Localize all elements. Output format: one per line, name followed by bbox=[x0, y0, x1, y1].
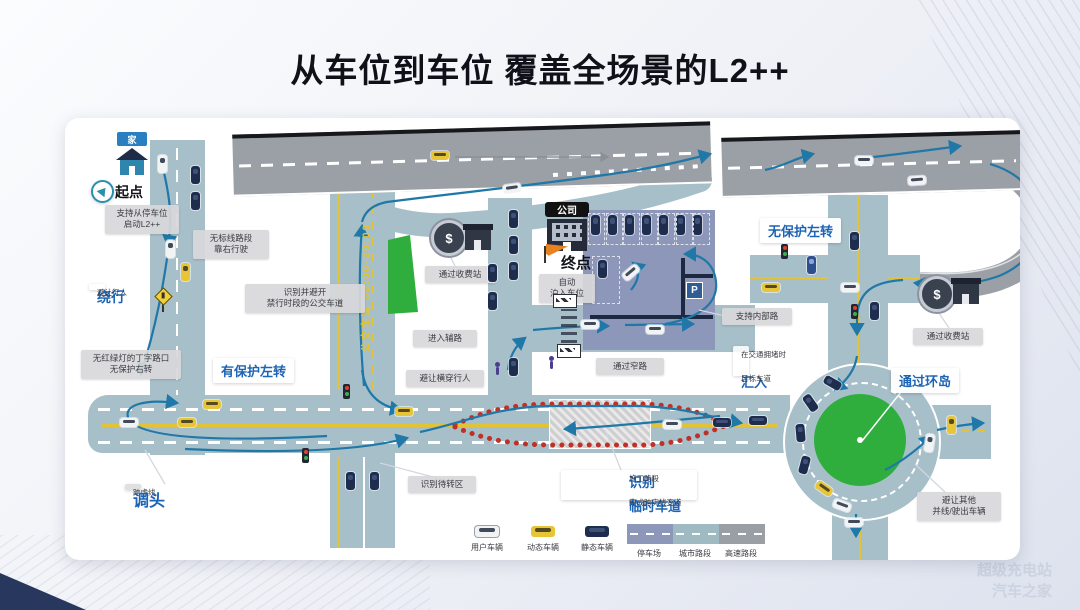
legend-parking-segment bbox=[627, 524, 673, 544]
protected-left-label: 有保护左转 bbox=[213, 358, 294, 383]
watermark: 超级充电站 汽车之家 bbox=[977, 560, 1052, 602]
car-stat-icon bbox=[346, 472, 355, 490]
home-sign: 家 bbox=[117, 132, 147, 146]
parking-stall bbox=[606, 213, 623, 245]
merge-small1: 在交通拥堵时 bbox=[741, 349, 786, 360]
car-dyn-icon bbox=[947, 416, 956, 434]
pedestrian-icon-1 bbox=[495, 362, 500, 367]
watermark-line2: 汽车之家 bbox=[977, 581, 1052, 602]
avoid-merge-note: 避让其他 并线/驶出车辆 bbox=[917, 492, 1001, 521]
parking-stall bbox=[658, 213, 675, 245]
shop-icon-left bbox=[465, 230, 491, 250]
car-stat-icon bbox=[509, 358, 518, 376]
car-stat-icon bbox=[370, 472, 379, 490]
legend-dynamic-label: 动态车辆 bbox=[527, 542, 559, 553]
car-stat-icon bbox=[850, 232, 859, 250]
car-stat-icon bbox=[191, 192, 200, 210]
watermark-line1: 超级充电站 bbox=[977, 560, 1052, 581]
car-dyn-icon bbox=[431, 151, 449, 160]
enter-side-road-note: 进入辅路 bbox=[413, 330, 477, 347]
parking-stall bbox=[623, 213, 640, 245]
internal-road-note: 支持内部路 bbox=[722, 308, 792, 325]
car-stat-icon bbox=[488, 264, 497, 282]
car-stat-icon bbox=[509, 210, 518, 228]
u-turn-label: 跨虚线 调头 bbox=[125, 484, 141, 490]
construction-small3: 完成跨实线变道 bbox=[629, 497, 682, 508]
page-title: 从车位到车位 覆盖全场景的L2++ bbox=[0, 44, 1080, 92]
detour-small: 避让行人 bbox=[97, 287, 127, 298]
legend-user-car-icon bbox=[475, 526, 499, 537]
car-stat-icon bbox=[795, 424, 806, 443]
car-blue-icon bbox=[807, 256, 816, 274]
car-stat-icon bbox=[191, 166, 200, 184]
toll-coin-icon-left: $ bbox=[431, 220, 467, 256]
car-stat-icon bbox=[509, 262, 518, 280]
traffic-light-icon bbox=[851, 304, 858, 319]
construction-label: 识别施工路段 的临时车道完成跨实线变道 bbox=[561, 470, 697, 500]
car-stat-icon bbox=[598, 260, 607, 278]
bus-lane-avoid-note: 识别并避开 禁行时段的公交车道 bbox=[245, 284, 365, 313]
car-user-icon bbox=[845, 518, 863, 527]
legend: 用户车辆 动态车辆 静态车辆 停车场 城市路段 高速路段 bbox=[465, 522, 795, 558]
company-sign: 公司 bbox=[545, 202, 589, 217]
legend-parking-label: 停车场 bbox=[637, 548, 661, 559]
merge-small2: 目标车道 bbox=[741, 373, 771, 384]
avoid-crossing-note: 避让横穿行人 bbox=[406, 370, 484, 387]
car-stat-icon bbox=[509, 236, 518, 254]
parking-stall bbox=[588, 213, 605, 245]
start-note: 支持从停车位 启动L2++ bbox=[105, 205, 179, 234]
no-marking-note: 无标线路段 靠右行驶 bbox=[193, 230, 269, 259]
car-stat-icon bbox=[749, 416, 767, 425]
legend-static-car-icon bbox=[585, 526, 609, 537]
unprotected-left-label: 无保护左转 bbox=[760, 218, 841, 243]
waiting-zone-note: 识别待转区 bbox=[408, 476, 476, 493]
parking-stall bbox=[641, 213, 658, 245]
gate-barrier-icon-top bbox=[553, 294, 577, 308]
u-turn-big: 调头 bbox=[133, 487, 165, 511]
car-user-icon bbox=[166, 240, 175, 258]
traffic-light-icon bbox=[781, 244, 788, 259]
finish-flag-pole bbox=[544, 246, 546, 263]
car-dyn-icon bbox=[181, 263, 190, 281]
legend-highway-label: 高速路段 bbox=[725, 548, 757, 559]
home-house-icon bbox=[120, 160, 144, 175]
car-stat-icon bbox=[713, 418, 731, 427]
car-user-icon bbox=[908, 175, 927, 185]
parking-stall bbox=[693, 213, 710, 245]
legend-dynamic-car-icon bbox=[531, 526, 555, 537]
traffic-light-icon bbox=[343, 384, 350, 399]
shop-icon-right bbox=[953, 284, 979, 304]
pedestrian-icon-2 bbox=[549, 356, 554, 361]
legend-static-label: 静态车辆 bbox=[581, 542, 613, 553]
car-dyn-icon bbox=[203, 400, 221, 409]
gate-path-ladder bbox=[561, 309, 577, 343]
car-user-icon bbox=[841, 283, 859, 292]
start-label: 起点 bbox=[115, 182, 143, 202]
car-stat-icon bbox=[488, 292, 497, 310]
construction-small1: 施工路段 bbox=[629, 473, 659, 484]
car-user-icon bbox=[663, 420, 681, 429]
car-user-icon bbox=[855, 156, 873, 165]
legend-highway-segment bbox=[719, 524, 765, 544]
toll-left-note: 通过收费站 bbox=[425, 266, 495, 283]
start-pin-icon bbox=[91, 180, 114, 203]
parking-stall bbox=[676, 213, 693, 245]
car-user-icon bbox=[581, 320, 599, 329]
car-user-icon bbox=[158, 155, 167, 173]
toll-right-note: 通过收费站 bbox=[913, 328, 983, 345]
legend-city-label: 城市路段 bbox=[679, 548, 711, 559]
car-stat-icon bbox=[870, 302, 879, 320]
car-dyn-icon bbox=[762, 283, 780, 292]
parking-p-sign: P bbox=[686, 282, 703, 299]
home-roof-icon bbox=[116, 148, 148, 160]
narrow-road-note: 通过窄路 bbox=[596, 358, 664, 375]
toll-coin-icon-right: $ bbox=[919, 276, 955, 312]
car-dyn-icon bbox=[178, 418, 196, 427]
gate-barrier-icon-bottom bbox=[557, 344, 581, 358]
car-user-icon bbox=[646, 325, 664, 334]
route-arrows bbox=[65, 118, 1020, 560]
traffic-light-icon bbox=[302, 448, 309, 463]
merge-label: 在交通拥堵时 汇入目标车道 bbox=[733, 346, 749, 376]
legend-user-label: 用户车辆 bbox=[471, 542, 503, 553]
end-label: 终点 bbox=[561, 252, 591, 273]
detour-label: 绕行 避让行人 bbox=[89, 284, 105, 290]
scenario-map: 家 起点 公交车道 06:00-20:00 $ $ 公司 终点 自动 泊入车位 … bbox=[65, 118, 1020, 560]
roundabout-label: 通过环岛 bbox=[891, 368, 959, 393]
legend-city-segment bbox=[673, 524, 719, 544]
car-user-icon bbox=[120, 418, 138, 427]
car-dyn-icon bbox=[395, 407, 413, 416]
t-junction-note: 无红绿灯的丁字路口 无保护右转 bbox=[81, 350, 181, 379]
